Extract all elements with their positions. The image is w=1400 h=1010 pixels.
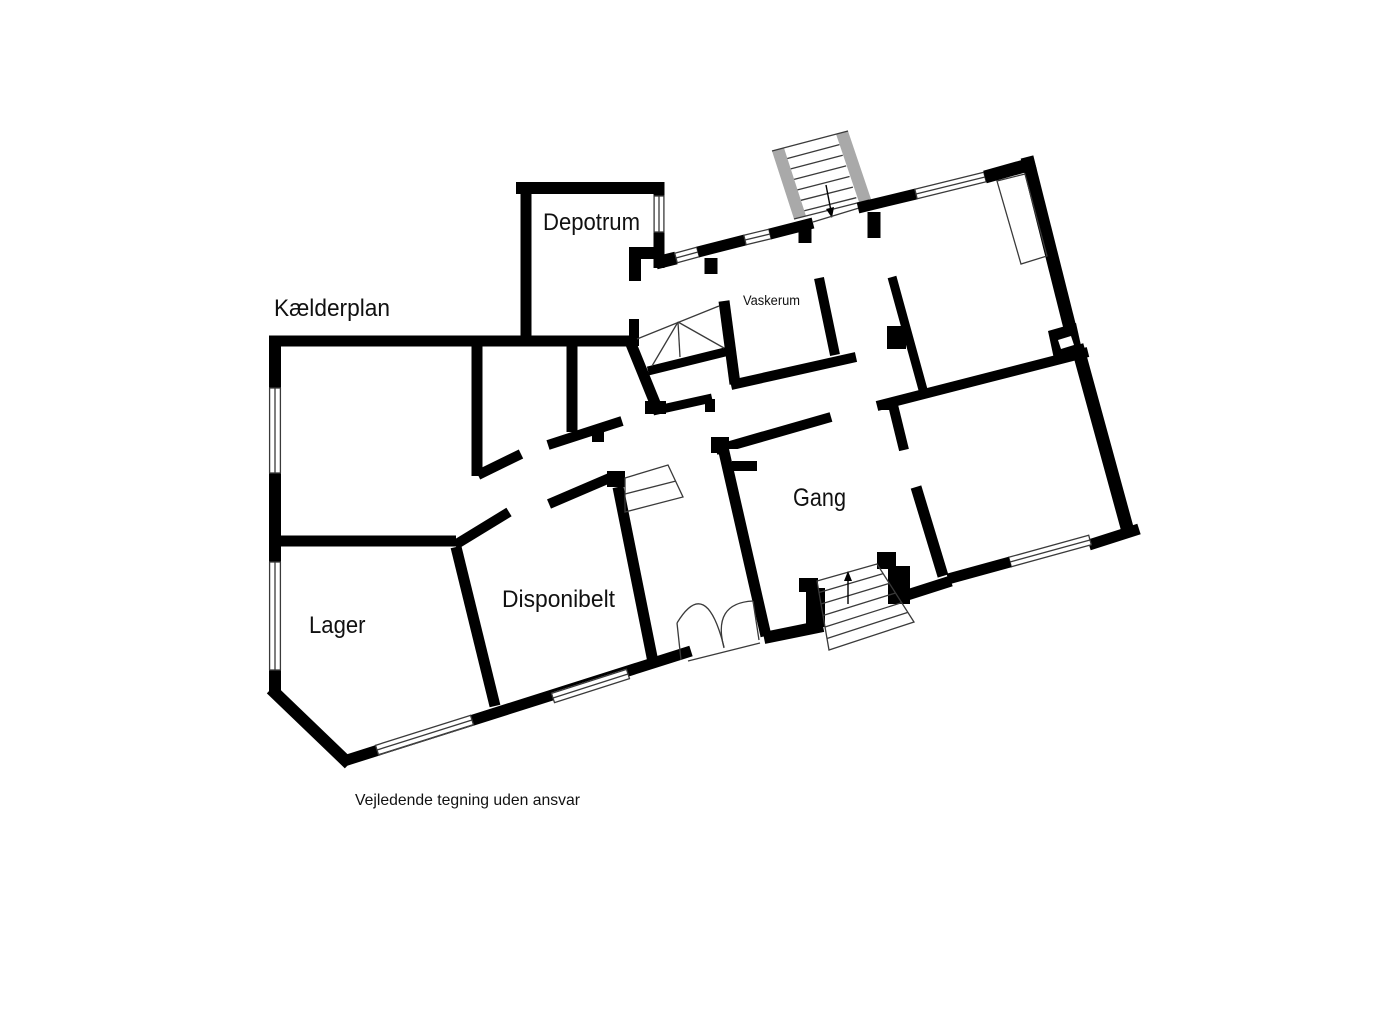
svg-text:Gang: Gang <box>793 485 846 512</box>
svg-text:Kælderplan: Kælderplan <box>274 295 390 322</box>
svg-text:Lager: Lager <box>309 612 366 639</box>
svg-text:Vaskerum: Vaskerum <box>743 293 800 308</box>
svg-text:Vejledende tegning uden ansvar: Vejledende tegning uden ansvar <box>355 792 581 809</box>
svg-text:Disponibelt: Disponibelt <box>502 586 615 613</box>
svg-text:Depotrum: Depotrum <box>543 209 640 236</box>
